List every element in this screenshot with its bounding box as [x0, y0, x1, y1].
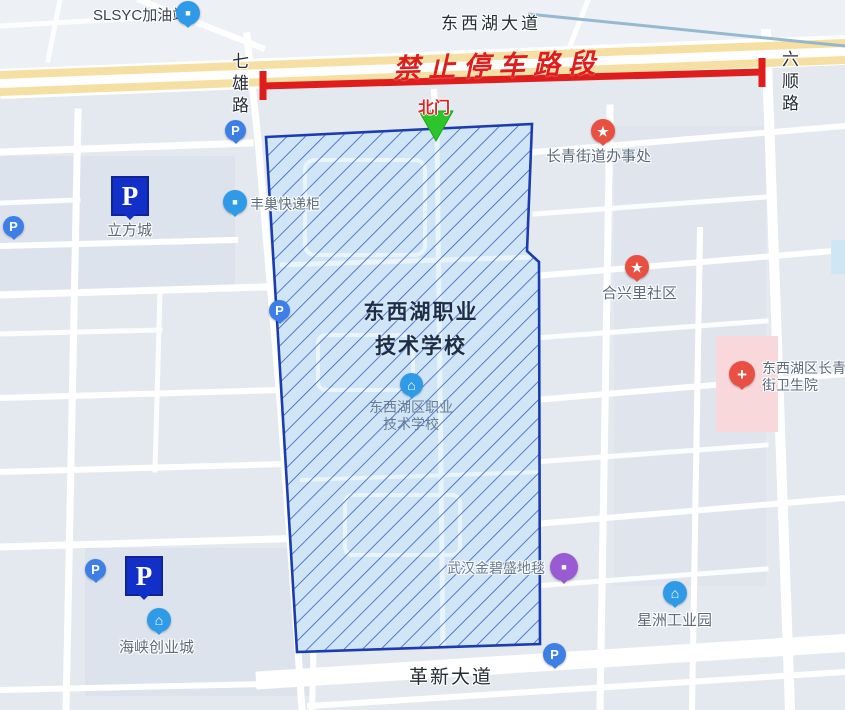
- locker-icon: ■: [232, 198, 237, 207]
- school-icon: ⌂: [407, 378, 415, 392]
- hexingli-community-marker[interactable]: ★: [625, 255, 649, 279]
- parking-icon: P: [122, 181, 139, 212]
- parking-icon: P: [136, 561, 153, 592]
- gas-station-label: SLSYC加油站: [93, 4, 187, 25]
- hospital-label-line1: 东西湖区长青: [762, 360, 845, 377]
- lifang-parking-marker[interactable]: P: [111, 176, 149, 216]
- school-poi-label: 东西湖区职业 技术学校: [341, 399, 481, 433]
- hospital-marker[interactable]: +: [729, 361, 755, 387]
- parking-marker-zone-edge[interactable]: P: [269, 300, 290, 321]
- xingzhou-park-label: 星洲工业园: [637, 609, 712, 630]
- school-poi-line2: 技术学校: [341, 416, 481, 433]
- north-gate-label: 北门: [418, 94, 450, 118]
- school-title-line2: 技术学校: [321, 330, 521, 364]
- building-icon: ⌂: [671, 586, 679, 600]
- water-patch: [831, 240, 845, 274]
- dongxihu-avenue-label: 东西湖大道: [441, 9, 541, 34]
- parking-icon: P: [231, 123, 240, 138]
- gexin-avenue-label: 革新大道: [409, 662, 493, 689]
- gas-station-marker[interactable]: ■: [176, 1, 200, 25]
- no-parking-banner: 禁止停车路段: [393, 41, 604, 85]
- shopping-bag-icon: ■: [561, 563, 566, 572]
- school-title-line1: 东西湖职业: [321, 296, 521, 330]
- star-icon: ★: [597, 125, 609, 138]
- school-zone-title: 东西湖职业 技术学校: [321, 296, 521, 364]
- gas-pump-icon: ■: [185, 9, 190, 18]
- building-icon: ⌂: [155, 613, 163, 627]
- star-icon: ★: [631, 261, 643, 274]
- parking-marker-haixia-small[interactable]: P: [85, 559, 106, 580]
- map-canvas[interactable]: 东西湖大道 禁止停车路段 北门 七雄路 六顺路 革新大道 东西湖职业 技术学校 …: [0, 0, 845, 710]
- parking-icon: P: [9, 219, 18, 234]
- fengchao-marker[interactable]: ■: [223, 190, 247, 214]
- changqing-office-marker[interactable]: ★: [591, 119, 615, 143]
- parking-marker-west[interactable]: P: [3, 216, 24, 237]
- parking-marker-gexin[interactable]: P: [543, 643, 566, 666]
- school-poi-marker[interactable]: ⌂: [400, 373, 423, 396]
- qixiong-road-label: 七雄路: [226, 52, 251, 118]
- parking-marker-qixiong[interactable]: P: [225, 120, 246, 141]
- carpet-company-marker[interactable]: ■: [550, 553, 578, 581]
- fengchao-locker-label: 丰巢快递柜: [250, 194, 320, 214]
- hospital-label: 东西湖区长青 街卫生院: [762, 360, 845, 394]
- liushun-road-label: 六顺路: [776, 50, 801, 116]
- carpet-company-label: 武汉金碧盛地毯: [447, 558, 545, 578]
- xingzhou-park-marker[interactable]: ⌂: [663, 581, 687, 605]
- parking-icon: P: [275, 303, 284, 318]
- haixia-city-label: 海峡创业城: [119, 636, 194, 657]
- haixia-city-marker[interactable]: ⌂: [147, 608, 171, 632]
- parking-icon: P: [550, 648, 559, 661]
- parking-icon: P: [91, 562, 100, 577]
- haixia-parking-marker[interactable]: P: [125, 556, 163, 596]
- medical-cross-icon: +: [737, 366, 747, 383]
- hospital-label-line2: 街卫生院: [762, 377, 845, 394]
